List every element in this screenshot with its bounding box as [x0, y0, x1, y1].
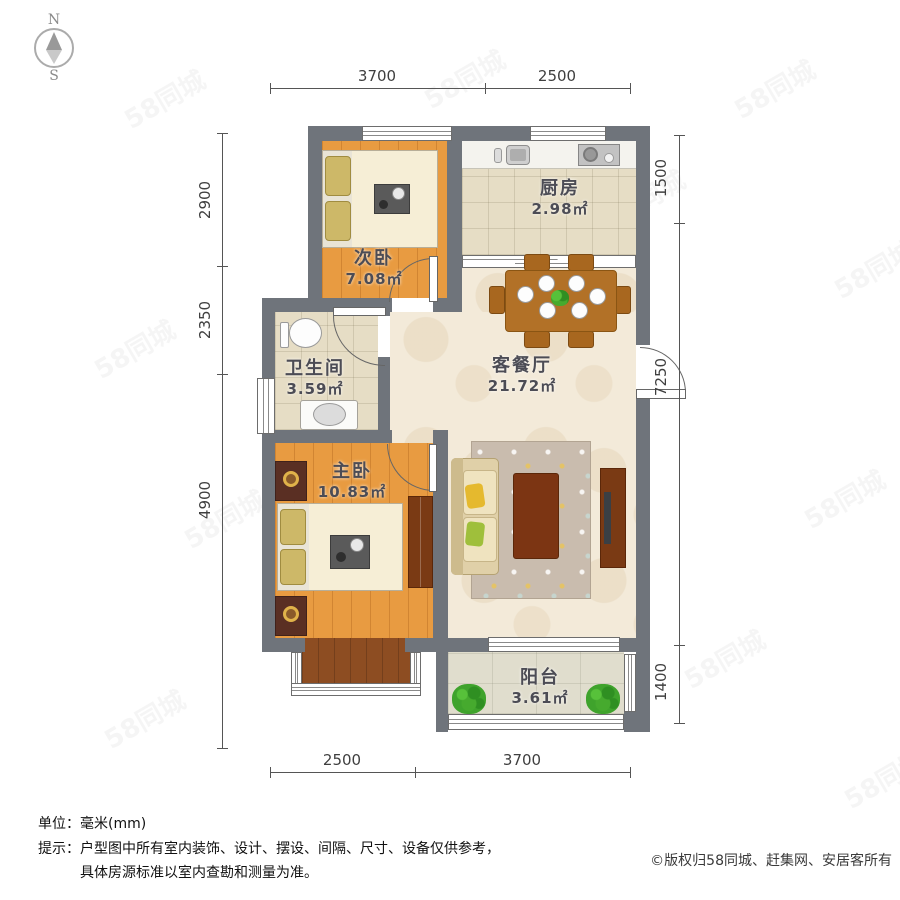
dim-line — [270, 772, 630, 773]
room-label-kitchen: 厨房 2.98㎡ — [531, 178, 588, 218]
bay-window-floor — [302, 638, 410, 684]
plate-icon — [538, 275, 555, 292]
wall — [624, 712, 650, 732]
dim-line — [270, 88, 630, 89]
room-name: 客餐厅 — [488, 355, 556, 377]
dim-label: 2500 — [538, 67, 576, 85]
dim-tick — [217, 266, 228, 267]
dim-label: 3700 — [503, 751, 541, 769]
dim-tick — [270, 83, 271, 94]
room-area: 10.83㎡ — [318, 483, 386, 501]
tip-label: 提示： — [38, 837, 80, 886]
watermark: 58同城 — [117, 60, 212, 136]
dining-chair — [524, 331, 550, 348]
plate-icon — [571, 302, 588, 319]
wall — [433, 430, 448, 443]
dining-chair — [568, 254, 594, 271]
dim-label: 4900 — [196, 481, 214, 519]
pillow — [325, 201, 351, 241]
wall — [447, 141, 462, 312]
tray-plate — [350, 538, 364, 552]
compass: N S — [22, 12, 86, 90]
tray-bowl — [379, 200, 388, 209]
plate-icon — [568, 275, 585, 292]
wash-basin-icon — [313, 403, 346, 426]
burner-icon — [583, 147, 598, 162]
dim-tick — [674, 135, 685, 136]
dim-label: 2350 — [196, 301, 214, 339]
dim-tick — [674, 645, 685, 646]
unit-note: 单位： 毫米(mm) — [38, 812, 500, 837]
balcony-window — [448, 714, 624, 730]
wall — [308, 141, 322, 298]
tray-plate — [392, 187, 405, 200]
compass-needle-icon — [46, 50, 62, 64]
dim-label: 7250 — [652, 358, 670, 396]
room-area: 21.72㎡ — [488, 377, 556, 395]
room-name: 主卧 — [318, 461, 386, 483]
watermark: 58同城 — [727, 50, 822, 126]
lamp-icon — [283, 471, 299, 487]
dim-tick — [270, 767, 271, 778]
bathroom-door-leaf — [333, 307, 386, 316]
wall — [262, 443, 275, 638]
wall — [262, 312, 275, 378]
dim-tick — [630, 83, 631, 94]
dim-label: 1400 — [652, 663, 670, 701]
lamp-icon — [283, 606, 299, 622]
room-area: 3.61㎡ — [511, 689, 568, 707]
bay-window — [291, 683, 421, 696]
window — [488, 637, 620, 652]
unit-label: 单位： — [38, 812, 80, 837]
dim-tick — [415, 767, 416, 778]
bedroom1-door-leaf — [429, 444, 437, 492]
unit-value: 毫米(mm) — [80, 812, 146, 837]
watermark: 58同城 — [87, 310, 182, 386]
bedroom2-door-leaf — [429, 256, 438, 302]
room-name: 次卧 — [345, 248, 402, 270]
watermark: 58同城 — [837, 740, 900, 816]
dining-chair — [524, 254, 550, 271]
watermark: 58同城 — [417, 40, 512, 116]
wall — [262, 638, 305, 652]
room-name: 卫生间 — [285, 358, 345, 380]
dim-tick — [217, 374, 228, 375]
tip-line2: 具体房源标准以室内查勘和测量为准。 — [80, 865, 318, 881]
room-area: 7.08㎡ — [345, 270, 402, 288]
watermark: 58同城 — [827, 230, 900, 306]
footer-notes: 单位： 毫米(mm) 提示： 户型图中所有室内装饰、设计、摆设、间隔、尺寸、设备… — [38, 812, 500, 886]
bed-tray — [374, 184, 410, 214]
dining-chair — [615, 286, 631, 314]
wall — [436, 652, 448, 732]
room-label-bedroom2: 次卧 7.08㎡ — [345, 248, 402, 288]
coffee-table — [513, 473, 559, 559]
room-area: 3.59㎡ — [285, 380, 345, 398]
tray-bowl — [336, 552, 346, 562]
pillow — [465, 521, 485, 547]
pillow — [280, 549, 306, 585]
dim-tick — [630, 767, 631, 778]
wall — [620, 638, 636, 652]
floorplan-page: 58同城 58同城 58同城 58同城 58同城 58同城 58同城 58同城 … — [0, 0, 900, 900]
compass-north-label: N — [22, 12, 86, 28]
dim-tick — [485, 83, 486, 94]
wall — [262, 430, 392, 443]
watermark: 58同城 — [677, 620, 772, 696]
balcony-window — [624, 654, 636, 712]
dim-label: 2500 — [323, 751, 361, 769]
bottle-icon — [494, 148, 502, 163]
bed-tray — [330, 535, 370, 569]
plate-icon — [589, 288, 606, 305]
room-name: 厨房 — [531, 178, 588, 200]
watermark: 58同城 — [177, 480, 272, 556]
pillow — [280, 509, 306, 545]
plant-icon — [586, 684, 620, 714]
compass-needle-icon — [46, 32, 62, 50]
sofa-back — [451, 458, 463, 575]
watermark: 58同城 — [97, 680, 192, 756]
toilet-tank-icon — [280, 322, 289, 348]
window — [257, 378, 275, 434]
dining-chair — [568, 331, 594, 348]
dim-line — [222, 133, 223, 748]
compass-south-label: S — [22, 68, 86, 84]
dim-tick — [674, 223, 685, 224]
room-label-living: 客餐厅 21.72㎡ — [488, 355, 556, 395]
copyright-text: ©版权归58同城、赶集网、安居客所有 — [650, 850, 892, 870]
dim-tick — [674, 723, 685, 724]
dining-chair — [489, 286, 505, 314]
bay-window — [410, 652, 421, 686]
pillow — [464, 483, 485, 509]
dim-label: 2900 — [196, 181, 214, 219]
dim-label: 3700 — [358, 67, 396, 85]
wall — [636, 141, 650, 345]
wardrobe — [408, 496, 433, 588]
bay-window — [291, 652, 302, 686]
centerpiece-plant-icon — [551, 290, 569, 306]
plant-icon — [452, 684, 486, 714]
room-name: 阳台 — [511, 667, 568, 689]
wall — [636, 395, 650, 652]
window — [530, 126, 606, 141]
toilet-bowl-icon — [289, 318, 322, 348]
tv-icon — [604, 492, 611, 544]
room-label-bathroom: 卫生间 3.59㎡ — [285, 358, 345, 398]
wall — [448, 638, 488, 652]
room-label-bedroom1: 主卧 10.83㎡ — [318, 461, 386, 501]
pillow — [325, 156, 351, 196]
wall — [405, 638, 433, 652]
tip-line1: 户型图中所有室内装饰、设计、摆设、间隔、尺寸、设备仅供参考， — [80, 841, 500, 857]
dim-tick — [217, 133, 228, 134]
dim-tick — [217, 748, 228, 749]
tip-note: 提示： 户型图中所有室内装饰、设计、摆设、间隔、尺寸、设备仅供参考， 具体房源标… — [38, 837, 500, 886]
room-label-balcony: 阳台 3.61㎡ — [511, 667, 568, 707]
dim-label: 1500 — [652, 159, 670, 197]
burner-icon — [604, 153, 614, 163]
plate-icon — [517, 286, 534, 303]
sink-basin-icon — [510, 149, 526, 161]
room-area: 2.98㎡ — [531, 200, 588, 218]
window — [362, 126, 452, 141]
watermark: 58同城 — [797, 460, 892, 536]
tip-text: 户型图中所有室内装饰、设计、摆设、间隔、尺寸、设备仅供参考， 具体房源标准以室内… — [80, 837, 500, 886]
